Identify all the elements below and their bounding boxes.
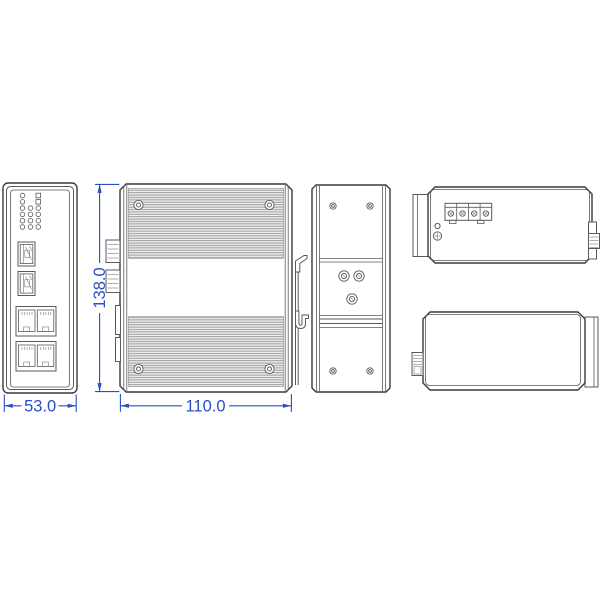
terminal-screw	[472, 211, 477, 216]
din-clip-ribbed	[589, 234, 600, 249]
arrowhead-down-icon	[98, 383, 102, 392]
screw-center	[369, 205, 372, 208]
dimensional-drawing: 53.0 110.0 138.0	[0, 0, 600, 600]
terminal-screw	[483, 211, 488, 216]
arrowhead-up-icon	[98, 184, 102, 193]
din-clip-spring-hook	[296, 311, 309, 329]
screw-center	[369, 370, 372, 373]
drawing-svg: 53.0 110.0 138.0	[0, 0, 600, 600]
back-outer-case	[312, 185, 390, 392]
bottom-view	[412, 312, 598, 390]
top-view	[413, 187, 600, 263]
din-clip-top-hook	[296, 256, 308, 273]
arrowhead-left-icon	[4, 404, 13, 408]
terminal-screw	[448, 211, 453, 216]
screw-center	[332, 370, 335, 373]
din-rail-clip-side	[296, 256, 309, 386]
back-view	[312, 185, 390, 392]
din-clip-strip	[585, 317, 598, 387]
din-clip-bottom-edge	[585, 317, 598, 387]
screw-center	[268, 367, 272, 371]
front-width-label: 53.0	[24, 398, 56, 416]
screw-center	[332, 205, 335, 208]
screw-center	[137, 367, 141, 371]
heatsink-fins-top	[129, 188, 284, 258]
bottom-outer-case	[423, 312, 585, 390]
rj45-shield-side	[116, 306, 121, 335]
console-port-bottom	[412, 353, 423, 376]
sfp-cage-side	[106, 240, 120, 263]
front-bezel-overhang-top	[413, 195, 429, 257]
arrowhead-left-icon	[120, 404, 128, 408]
rj45-shields-side	[116, 306, 121, 362]
heatsink-fins-bottom	[129, 317, 284, 387]
console-port-block	[412, 353, 423, 376]
screw-center	[137, 203, 141, 207]
top-outer-case	[428, 187, 592, 263]
rj45-shield-side	[116, 338, 121, 362]
bezel-overhang	[413, 195, 429, 257]
dimension-depth: 110.0	[120, 394, 291, 416]
front-outer-case	[3, 183, 77, 393]
terminal-screw	[460, 211, 465, 216]
din-clip-top-edge	[589, 222, 600, 259]
arrowhead-right-icon	[68, 404, 77, 408]
side-view	[106, 184, 309, 392]
depth-label: 110.0	[185, 398, 225, 416]
dimension-front-width: 53.0	[4, 395, 76, 416]
height-label: 138.0	[91, 267, 109, 308]
front-view	[3, 183, 77, 393]
ground-screw	[433, 232, 441, 240]
screw-center	[268, 203, 272, 207]
arrowhead-right-icon	[283, 404, 292, 408]
